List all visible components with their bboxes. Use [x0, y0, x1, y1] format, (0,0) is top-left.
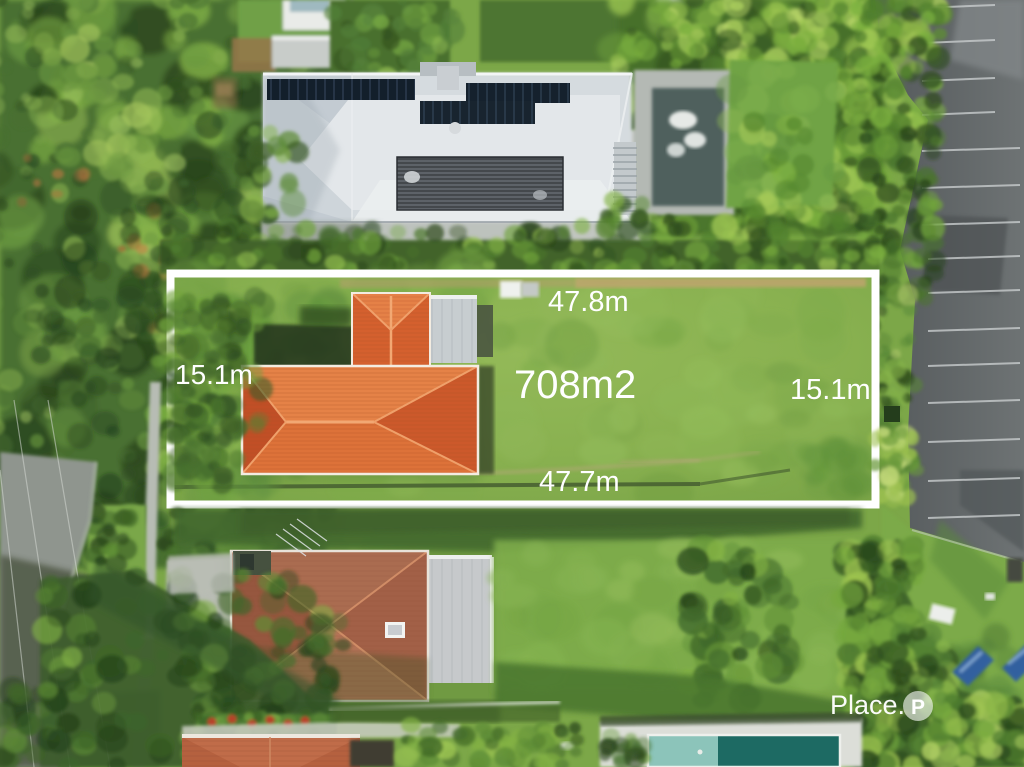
svg-text:708m2: 708m2 — [514, 363, 636, 407]
svg-text:15.1m: 15.1m — [790, 374, 871, 406]
svg-text:P: P — [911, 696, 925, 719]
svg-text:Place.: Place. — [830, 690, 905, 720]
svg-text:47.8m: 47.8m — [548, 286, 629, 318]
svg-text:15.1m: 15.1m — [175, 359, 253, 390]
svg-text:47.7m: 47.7m — [539, 466, 620, 498]
